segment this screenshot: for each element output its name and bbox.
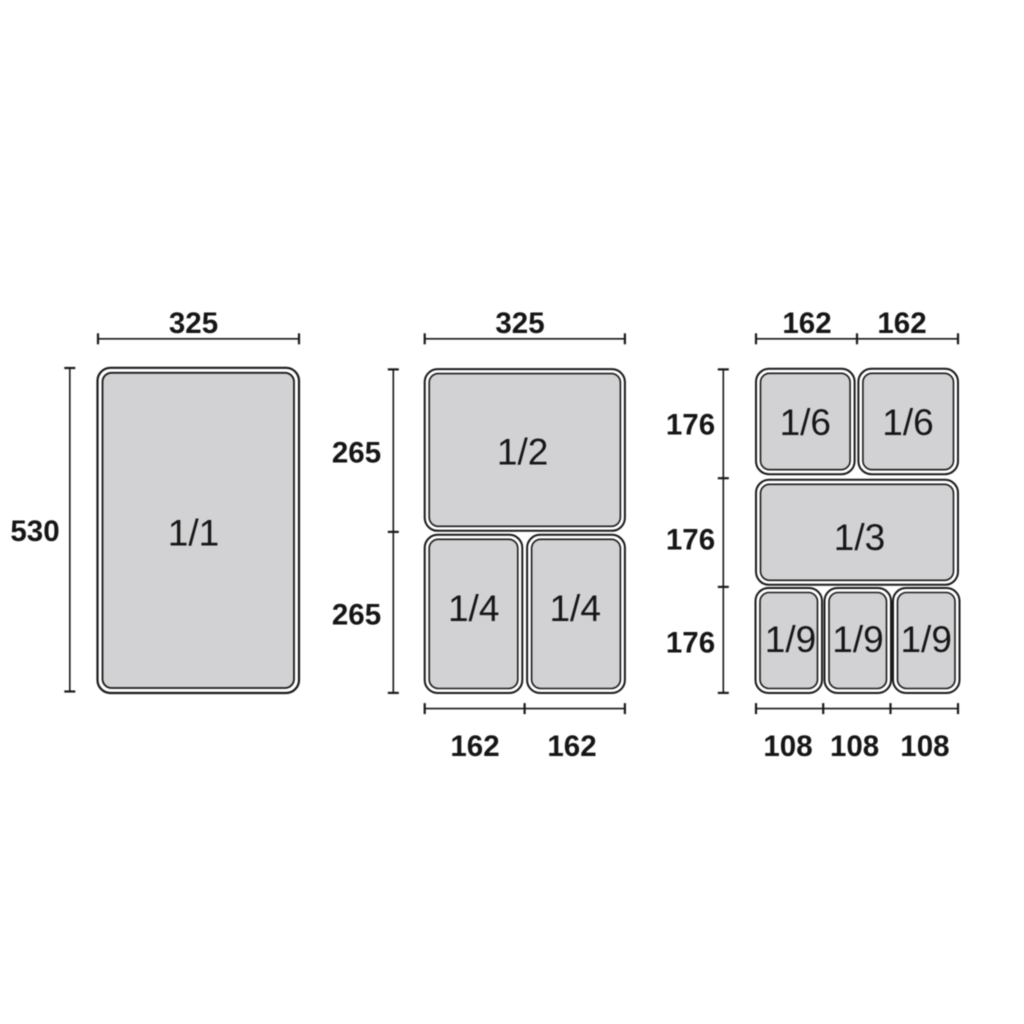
svg-text:162: 162 [547,730,596,763]
svg-text:325: 325 [169,307,218,340]
svg-text:265: 265 [332,437,381,470]
svg-text:176: 176 [666,627,715,660]
svg-text:1/9: 1/9 [900,619,951,660]
svg-text:162: 162 [782,307,831,340]
svg-text:1/4: 1/4 [448,588,499,629]
svg-text:108: 108 [900,730,949,763]
svg-text:1/3: 1/3 [834,517,885,558]
svg-text:108: 108 [763,730,812,763]
svg-text:1/1: 1/1 [168,513,219,554]
svg-text:1/9: 1/9 [765,619,816,660]
svg-text:162: 162 [877,307,926,340]
svg-text:1/6: 1/6 [882,402,933,443]
svg-text:108: 108 [830,730,879,763]
svg-text:1/9: 1/9 [832,619,883,660]
svg-text:162: 162 [450,730,499,763]
svg-text:265: 265 [332,598,381,631]
svg-text:1/6: 1/6 [780,402,831,443]
svg-text:1/4: 1/4 [549,588,600,629]
svg-text:530: 530 [10,515,59,548]
svg-text:1/2: 1/2 [497,432,548,473]
svg-text:176: 176 [666,409,715,442]
svg-text:325: 325 [495,307,544,340]
svg-text:176: 176 [666,523,715,556]
